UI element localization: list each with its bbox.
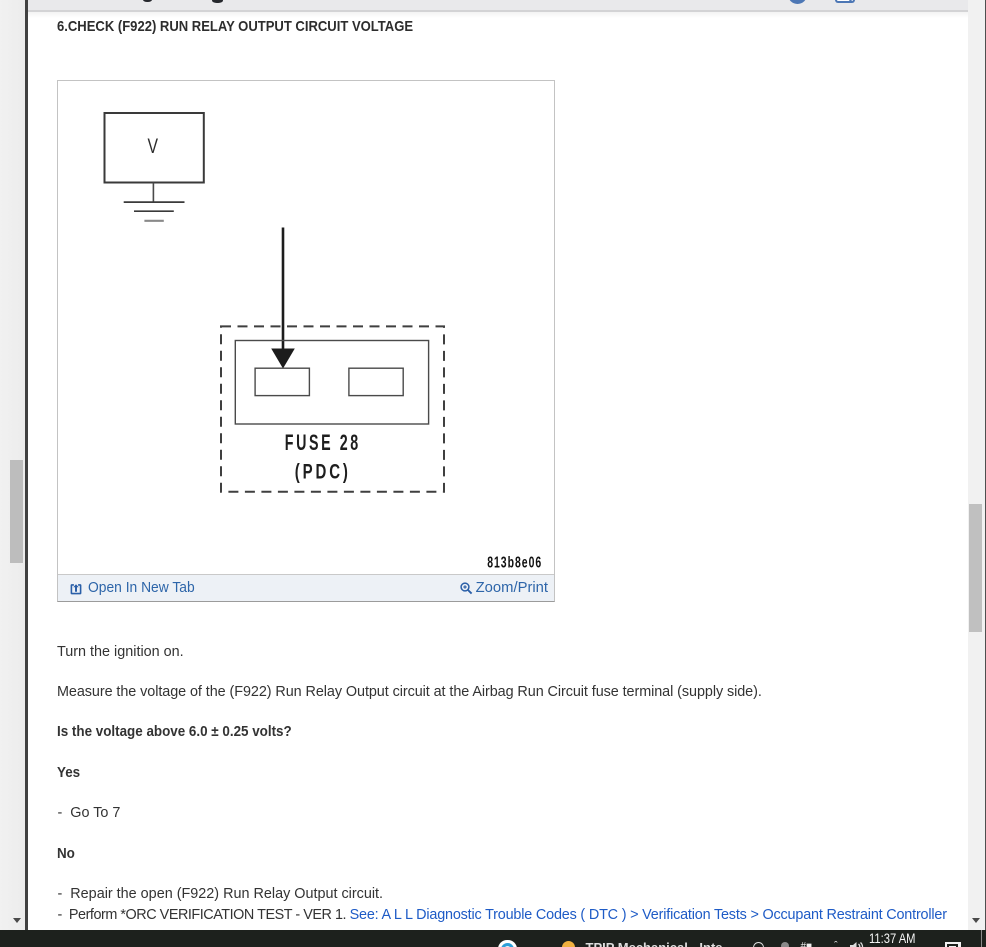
svg-text:813b8e06: 813b8e06 [487, 554, 542, 571]
svg-text:FUSE 28: FUSE 28 [285, 429, 361, 454]
svg-text:(PDC): (PDC) [295, 460, 351, 483]
svg-text:V: V [148, 133, 159, 157]
